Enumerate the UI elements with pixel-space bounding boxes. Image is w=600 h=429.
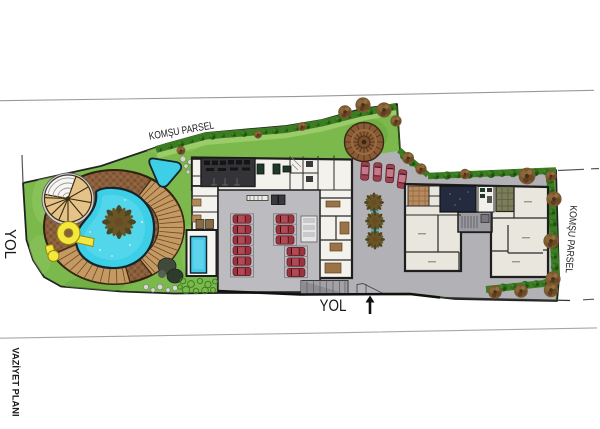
svg-text:VAZİYET PLANI: VAZİYET PLANI: [11, 347, 21, 416]
svg-text:YOL: YOL: [320, 297, 347, 315]
svg-text:YOL: YOL: [1, 229, 18, 259]
